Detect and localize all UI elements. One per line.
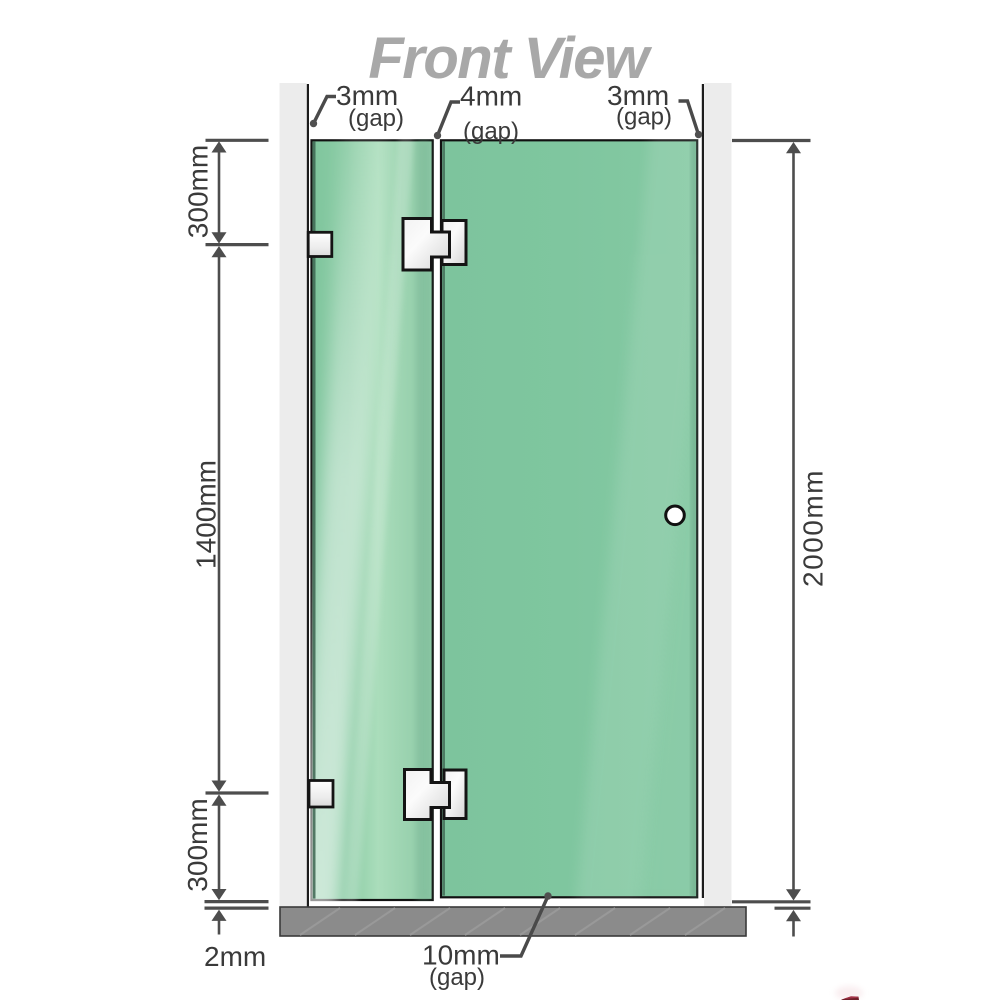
svg-text:(gap): (gap) (463, 118, 519, 145)
svg-text:(gap): (gap) (348, 105, 404, 132)
svg-text:(gap): (gap) (616, 104, 672, 131)
svg-text:300mm: 300mm (182, 798, 213, 891)
svg-text:4mm: 4mm (460, 81, 522, 112)
svg-text:2000mm: 2000mm (798, 469, 829, 587)
svg-text:1400mm: 1400mm (191, 460, 222, 569)
svg-text:2mm: 2mm (204, 941, 266, 972)
svg-text:300mm: 300mm (183, 145, 214, 238)
svg-text:(gap): (gap) (429, 964, 485, 991)
